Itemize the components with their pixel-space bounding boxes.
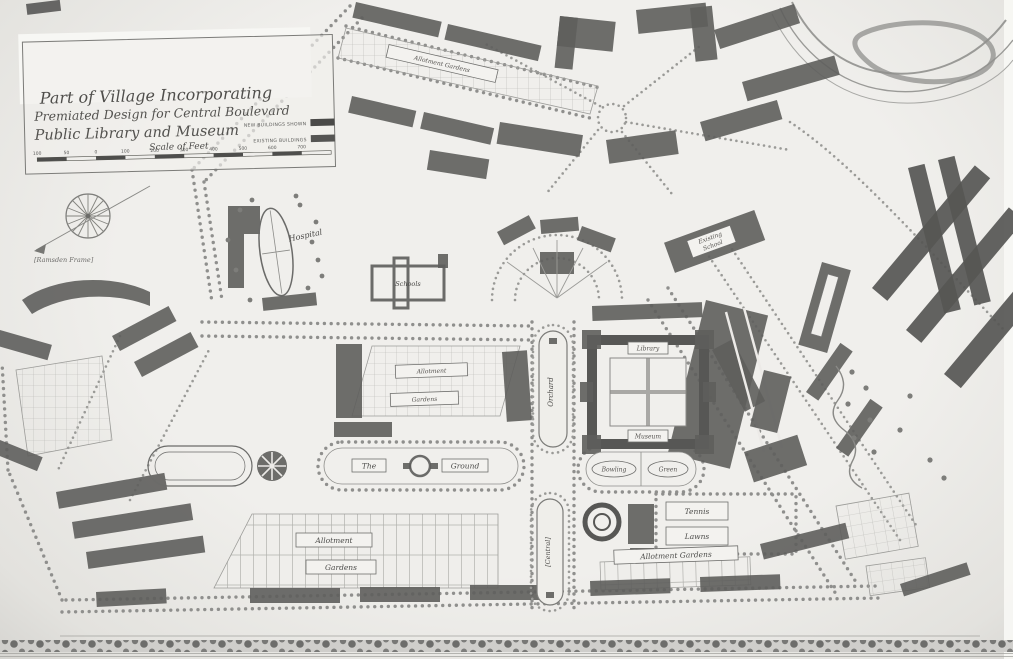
existing-buildings xyxy=(872,156,1013,388)
svg-text:100: 100 xyxy=(121,149,130,155)
building-block xyxy=(606,130,679,164)
schools-label: Schools xyxy=(395,280,421,288)
side-pavilion xyxy=(703,382,716,402)
allotment-grid xyxy=(836,493,918,559)
crescent-group xyxy=(497,215,616,298)
building-block xyxy=(497,122,583,157)
building-block xyxy=(760,523,849,560)
building-block xyxy=(56,473,167,509)
hospital-label: Hospital xyxy=(287,228,324,244)
building-block xyxy=(742,56,840,102)
building-block xyxy=(836,399,883,457)
bowling-green-group: Bowling Green xyxy=(586,452,696,486)
building-block xyxy=(700,574,780,592)
compass-group: [Ramsden Frame] xyxy=(34,186,150,264)
svg-text:0: 0 xyxy=(94,149,97,155)
building-block xyxy=(348,96,416,127)
building-block xyxy=(502,350,532,422)
the-ground-group: The Ground xyxy=(324,448,518,484)
corner-pavilion xyxy=(695,435,714,454)
boulevard-lower-label: [Central] xyxy=(544,537,552,567)
building-block xyxy=(112,306,176,351)
road-dots xyxy=(192,170,222,302)
allotment-mid-label: Gardens xyxy=(412,396,438,404)
corner-pavilion xyxy=(695,330,714,349)
frame-annotation: [Ramsden Frame] xyxy=(34,256,94,264)
crescent-block xyxy=(497,215,536,245)
building-block xyxy=(750,370,791,433)
building-block xyxy=(0,330,52,360)
bearing-arrowhead xyxy=(34,244,46,254)
museum-label: Museum xyxy=(634,434,662,441)
ground-label: The xyxy=(362,462,377,471)
building-block xyxy=(427,150,489,179)
schools-building: Schools xyxy=(372,254,448,308)
boulevard-median-upper: Orchard xyxy=(533,325,573,453)
building-block xyxy=(334,422,392,437)
building-block xyxy=(336,344,362,418)
legend-existing-swatch xyxy=(311,135,335,143)
allotment-bottom-label: Allotment xyxy=(314,536,353,545)
tennis-label: Tennis xyxy=(685,507,710,516)
legend-new-swatch xyxy=(310,119,334,127)
building-block xyxy=(700,100,782,141)
allotment-grid xyxy=(352,346,520,416)
hospital-wing xyxy=(262,292,317,311)
svg-text:100: 100 xyxy=(33,151,42,157)
allotment-grid xyxy=(214,514,498,588)
map-canvas: Hospital Schools Existing School Library xyxy=(0,0,1013,659)
tennis-group: Tennis Lawns xyxy=(666,502,728,545)
building-block xyxy=(72,503,193,539)
scan-corner-mark xyxy=(26,0,61,15)
building-block xyxy=(134,332,198,377)
svg-text:500: 500 xyxy=(238,146,247,152)
river xyxy=(772,2,1013,103)
crescent-terrace xyxy=(22,280,150,314)
allotment-bottom-label: Gardens xyxy=(325,563,357,572)
bandstand-core xyxy=(594,514,610,530)
ground-label: Ground xyxy=(451,462,480,471)
bandstand-ring xyxy=(585,505,619,539)
pavilion-block xyxy=(628,504,654,544)
building-block xyxy=(250,588,340,603)
building-block xyxy=(96,588,167,607)
median-monument xyxy=(546,592,554,598)
svg-text:50: 50 xyxy=(64,150,70,156)
bowling-label: Bowling xyxy=(601,467,627,474)
crescent-radials xyxy=(507,240,607,298)
building-block xyxy=(714,4,800,49)
boulevard-median-lower: [Central] xyxy=(531,493,569,611)
hospital-lawn-path xyxy=(256,208,295,295)
title-cartouche: Part of Village Incorporating Premiated … xyxy=(18,27,335,175)
ground-ornament xyxy=(403,463,411,469)
median-monument xyxy=(549,338,557,344)
circus-ring xyxy=(598,104,626,132)
green-label: Green xyxy=(659,467,678,474)
bearing-line xyxy=(36,186,150,250)
side-pavilion xyxy=(580,382,593,402)
building-block xyxy=(360,587,440,602)
library-label: Library xyxy=(636,346,660,353)
hospital-group: Hospital xyxy=(226,194,325,311)
rosette-paths xyxy=(258,452,286,480)
svg-text:300: 300 xyxy=(180,147,189,153)
building-block xyxy=(590,578,670,596)
tennis-label: Lawns xyxy=(684,532,710,541)
schools-tower xyxy=(438,254,448,268)
svg-text:200: 200 xyxy=(150,148,159,154)
oval-track-inner xyxy=(155,452,245,480)
crescent-block xyxy=(540,217,579,234)
existing-school-group: Existing School xyxy=(664,210,765,273)
building-block xyxy=(555,16,578,70)
svg-text:400: 400 xyxy=(209,146,218,152)
corner-pavilion xyxy=(582,330,601,349)
boulevard-upper-label: Orchard xyxy=(547,377,555,407)
svg-text:600: 600 xyxy=(268,145,277,151)
building-block xyxy=(86,536,205,569)
bottom-border-band xyxy=(0,640,1013,652)
rosette-garden xyxy=(257,451,287,481)
village-plan-map: Hospital Schools Existing School Library xyxy=(0,0,1013,659)
allotment-grid xyxy=(16,356,112,456)
ground-ornament xyxy=(430,463,438,469)
building-block xyxy=(420,112,494,145)
compass-hub xyxy=(86,214,90,218)
corner-pavilion xyxy=(582,435,601,454)
building-block xyxy=(744,435,807,483)
svg-text:700: 700 xyxy=(297,144,306,150)
allotment-mid-label: Allotment xyxy=(416,367,448,375)
building-block xyxy=(690,6,718,62)
hospital-building xyxy=(228,206,260,288)
road-dots xyxy=(202,322,532,340)
